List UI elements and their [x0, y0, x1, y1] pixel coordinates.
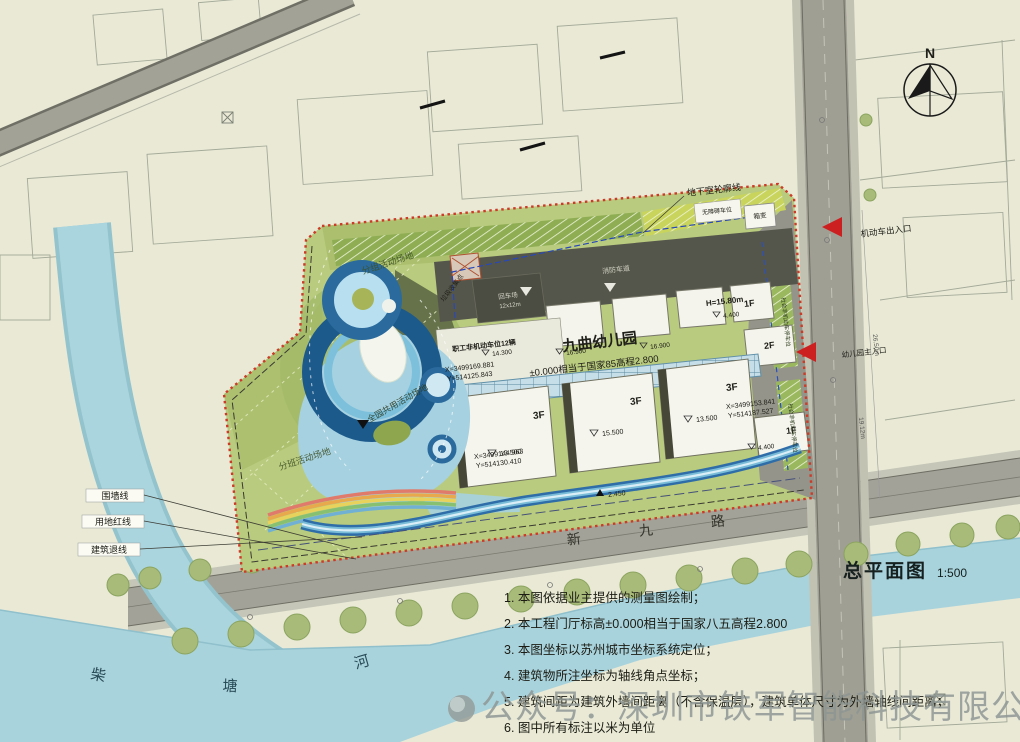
- setback-line-label: 建筑退线: [91, 544, 127, 555]
- watermark: 公众号：深圳市铁军智能科技有限公司: [448, 680, 1020, 728]
- drawing-scale: 1:500: [937, 566, 967, 580]
- floor-label-1f: 1F: [743, 298, 755, 309]
- title-block: 总平面图1:500: [843, 556, 967, 583]
- floor-label-3f: 3F: [725, 382, 738, 394]
- note-line: 1. 本图依据业主提供的测量图绘制；: [504, 585, 1019, 611]
- watermark-text: 公众号：深圳市铁军智能科技有限公司: [481, 688, 1020, 725]
- road-name-char: 新: [566, 530, 582, 547]
- fence-line-label: 围墙线: [101, 490, 128, 501]
- floor-label-3f: 3F: [532, 410, 545, 422]
- road-name-char: 路: [710, 512, 726, 529]
- river-name-char: 塘: [222, 678, 238, 696]
- note-line: 3. 本图坐标以苏州城市坐标系统定位；: [504, 637, 1019, 663]
- watermark-logo-icon: [448, 695, 475, 722]
- note-line: 2. 本工程门厅标高±0.000相当于国家八五高程2.800: [504, 611, 1019, 637]
- floor-label-3f: 3F: [629, 396, 642, 408]
- site-plan-drawing: 九曲幼儿园 ±0.000相当于国家85高程2.800 H=15.80m 3F 3…: [0, 0, 1020, 742]
- floor-label-2f: 2F: [763, 340, 775, 351]
- drawing-title: 总平面图: [843, 561, 927, 582]
- road-name-char: 九: [638, 521, 654, 538]
- north-label: N: [925, 45, 935, 61]
- red-line-label: 用地红线: [95, 516, 131, 527]
